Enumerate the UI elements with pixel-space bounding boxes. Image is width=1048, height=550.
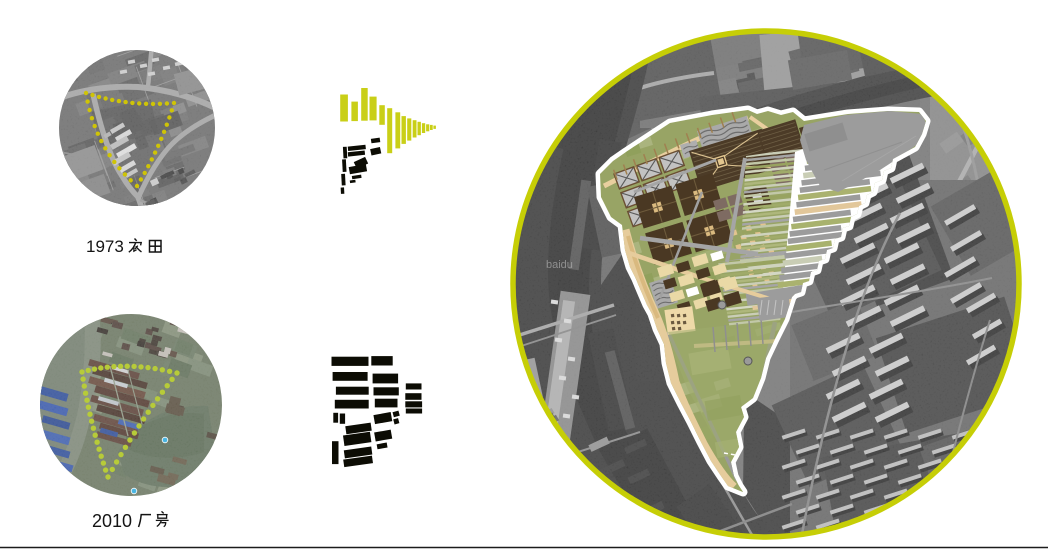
svg-text:2010: 2010 xyxy=(92,511,132,531)
svg-text:1973: 1973 xyxy=(86,237,124,256)
